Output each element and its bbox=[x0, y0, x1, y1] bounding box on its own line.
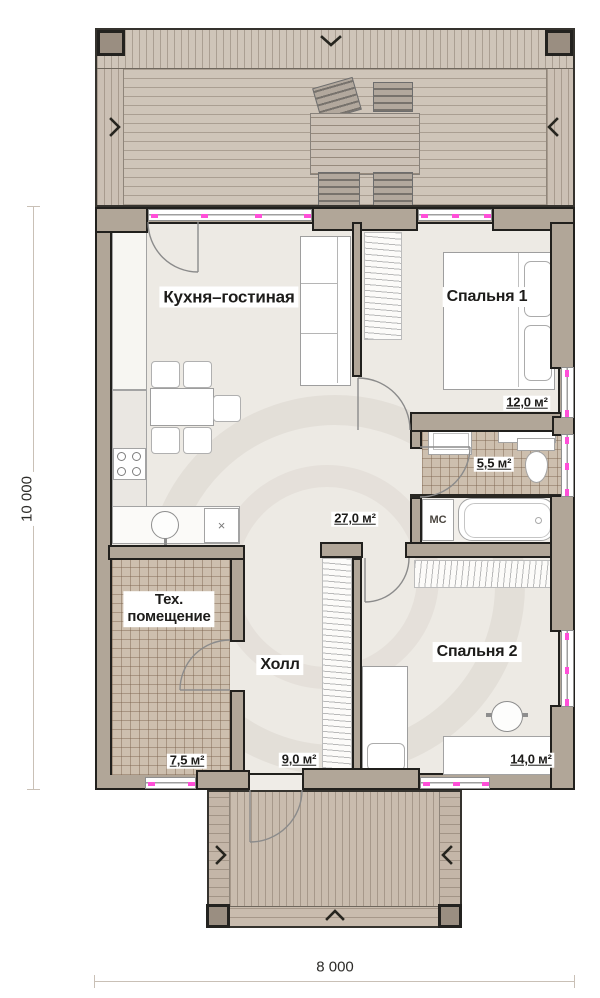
wall-tech-room-right-lower bbox=[230, 690, 245, 775]
window-tick bbox=[565, 437, 569, 444]
room-label-tech-room: Тех. помещение bbox=[123, 591, 214, 627]
window-tick bbox=[565, 489, 569, 496]
wall-bath-niche-divider bbox=[410, 494, 562, 498]
wall-bedroom2-top bbox=[405, 542, 555, 558]
wall-top-middle bbox=[312, 207, 418, 231]
window-bedroom2-bottom bbox=[420, 777, 490, 789]
wall-right-segment bbox=[552, 416, 575, 436]
chair-handle bbox=[522, 713, 528, 717]
bathroom-sink bbox=[428, 428, 472, 455]
window-tick bbox=[565, 633, 569, 640]
wall-right-segment bbox=[550, 705, 575, 790]
window-tick bbox=[453, 782, 460, 786]
terrace-top-planks bbox=[97, 30, 573, 69]
blanket-line bbox=[518, 253, 519, 387]
wall-tech-room-right-upper bbox=[230, 558, 245, 642]
window-tick bbox=[484, 214, 491, 218]
wall-bathroom-left-upper bbox=[410, 430, 422, 449]
porch-corner-post bbox=[438, 904, 462, 928]
terrace-chair bbox=[318, 172, 360, 207]
terrace-chair bbox=[373, 82, 413, 112]
burner-icon bbox=[117, 467, 126, 476]
window-tick bbox=[255, 214, 262, 218]
dining-chair bbox=[151, 361, 180, 388]
window-tick bbox=[565, 410, 569, 417]
wall-kitchen-bedroom1 bbox=[352, 222, 362, 377]
porch-corner-post bbox=[206, 904, 230, 928]
tech-room-label-line2: помещение bbox=[127, 609, 210, 626]
burner-icon bbox=[132, 452, 141, 461]
burner-icon bbox=[117, 452, 126, 461]
terrace-table bbox=[310, 113, 420, 175]
wall-bathroom-top bbox=[410, 412, 562, 432]
window-tick bbox=[188, 782, 195, 786]
sofa-back-line bbox=[337, 237, 338, 383]
tech-room-label-line1: Тех. bbox=[127, 592, 210, 609]
dining-chair bbox=[183, 361, 212, 388]
room-label-hall: Холл bbox=[256, 655, 303, 675]
wall-bottom-segment bbox=[196, 770, 250, 790]
wall-bottom-segment bbox=[302, 768, 420, 790]
window-bathroom-right bbox=[561, 434, 574, 497]
entrance-door-opening bbox=[250, 775, 302, 790]
bathtub-drain bbox=[535, 517, 542, 524]
window-tick bbox=[423, 782, 430, 786]
terrace-right-planks bbox=[546, 69, 573, 205]
wall-tech-room-top bbox=[108, 545, 245, 560]
wall-hall-closet-header bbox=[320, 542, 363, 558]
toilet-tank bbox=[517, 438, 555, 451]
window-kitchen-top bbox=[148, 209, 312, 221]
window-tick bbox=[565, 667, 569, 674]
dimension-line-bottom bbox=[95, 981, 575, 982]
bedroom1-wardrobe-hatch bbox=[364, 232, 402, 340]
dimension-width-label: 8 000 bbox=[312, 959, 358, 976]
window-tick bbox=[565, 463, 569, 470]
window-tick bbox=[201, 214, 208, 218]
wall-hall-bedroom2 bbox=[352, 558, 362, 775]
wall-right-segment bbox=[550, 495, 575, 632]
single-bed bbox=[362, 666, 408, 775]
wall-corner-top-left bbox=[95, 207, 148, 233]
kitchen-counter-upper bbox=[112, 226, 147, 390]
hall-wardrobe-hatch bbox=[322, 558, 352, 775]
porch-floor-planks bbox=[209, 792, 460, 906]
pillow-icon bbox=[524, 325, 552, 381]
double-bed bbox=[443, 252, 555, 390]
porch-step-planks bbox=[209, 906, 460, 927]
stove-icon bbox=[113, 448, 146, 480]
window-tick bbox=[151, 214, 158, 218]
dining-chair bbox=[183, 427, 212, 454]
kitchen-sink-icon bbox=[151, 511, 179, 539]
sofa-cushion-line bbox=[301, 283, 337, 284]
sofa-cushion-line bbox=[301, 333, 337, 334]
sofa bbox=[300, 236, 351, 386]
porch-deck bbox=[207, 790, 462, 928]
dimension-tick bbox=[94, 975, 95, 988]
terrace-chair bbox=[373, 172, 413, 207]
bathtub bbox=[458, 498, 555, 541]
pillow-icon bbox=[367, 743, 405, 771]
window-tick bbox=[565, 370, 569, 377]
dining-chair bbox=[213, 395, 241, 422]
washing-machine: МС bbox=[422, 499, 454, 541]
bedroom2-wardrobe-hatch bbox=[414, 560, 552, 588]
room-label-kitchen-living: Кухня–гостиная bbox=[159, 286, 298, 307]
dining-chair bbox=[151, 427, 180, 454]
area-label-tech-room: 7,5 м² bbox=[167, 754, 207, 769]
window-tick bbox=[482, 782, 489, 786]
area-label-kitchen-living: 27,0 м² bbox=[331, 512, 378, 527]
appliance-x-marker: × bbox=[218, 518, 226, 533]
room-label-bedroom2: Спальня 2 bbox=[433, 642, 522, 662]
burner-icon bbox=[132, 467, 141, 476]
room-label-bedroom1: Спальня 1 bbox=[443, 287, 532, 307]
window-tick bbox=[565, 699, 569, 706]
window-tick bbox=[304, 214, 311, 218]
window-tech-room-bottom bbox=[145, 777, 196, 789]
area-label-hall: 9,0 м² bbox=[279, 753, 319, 768]
terrace-corner-post bbox=[545, 30, 573, 56]
window-bedroom1-top bbox=[418, 209, 492, 221]
chair-handle bbox=[486, 713, 492, 717]
dining-table bbox=[150, 388, 214, 426]
terrace-deck bbox=[95, 28, 575, 207]
dimension-tick bbox=[27, 789, 40, 790]
area-label-bedroom1: 12,0 м² bbox=[503, 396, 550, 411]
wall-right-segment bbox=[550, 222, 575, 369]
area-label-bathroom: 5,5 м² bbox=[474, 457, 514, 472]
window-tick bbox=[148, 782, 155, 786]
desk-chair bbox=[491, 701, 523, 732]
dimension-height-label: 10 000 bbox=[19, 472, 36, 526]
floor-plan-canvas: 10 000 8 000 bbox=[0, 0, 600, 998]
area-label-bedroom2: 14,0 м² bbox=[507, 753, 554, 768]
sink-basin-line bbox=[433, 433, 469, 450]
porch-left-planks bbox=[209, 792, 230, 906]
window-bedroom1-right bbox=[561, 367, 574, 418]
dimension-tick bbox=[574, 975, 575, 988]
washing-machine-label: МС bbox=[429, 514, 446, 526]
terrace-corner-post bbox=[97, 30, 125, 56]
porch-right-planks bbox=[439, 792, 460, 906]
window-tick bbox=[452, 214, 459, 218]
terrace-left-planks bbox=[97, 69, 124, 205]
window-tick bbox=[421, 214, 428, 218]
dimension-tick bbox=[27, 206, 40, 207]
dishwasher-box: × bbox=[204, 508, 239, 543]
window-bedroom2-right bbox=[561, 630, 574, 707]
